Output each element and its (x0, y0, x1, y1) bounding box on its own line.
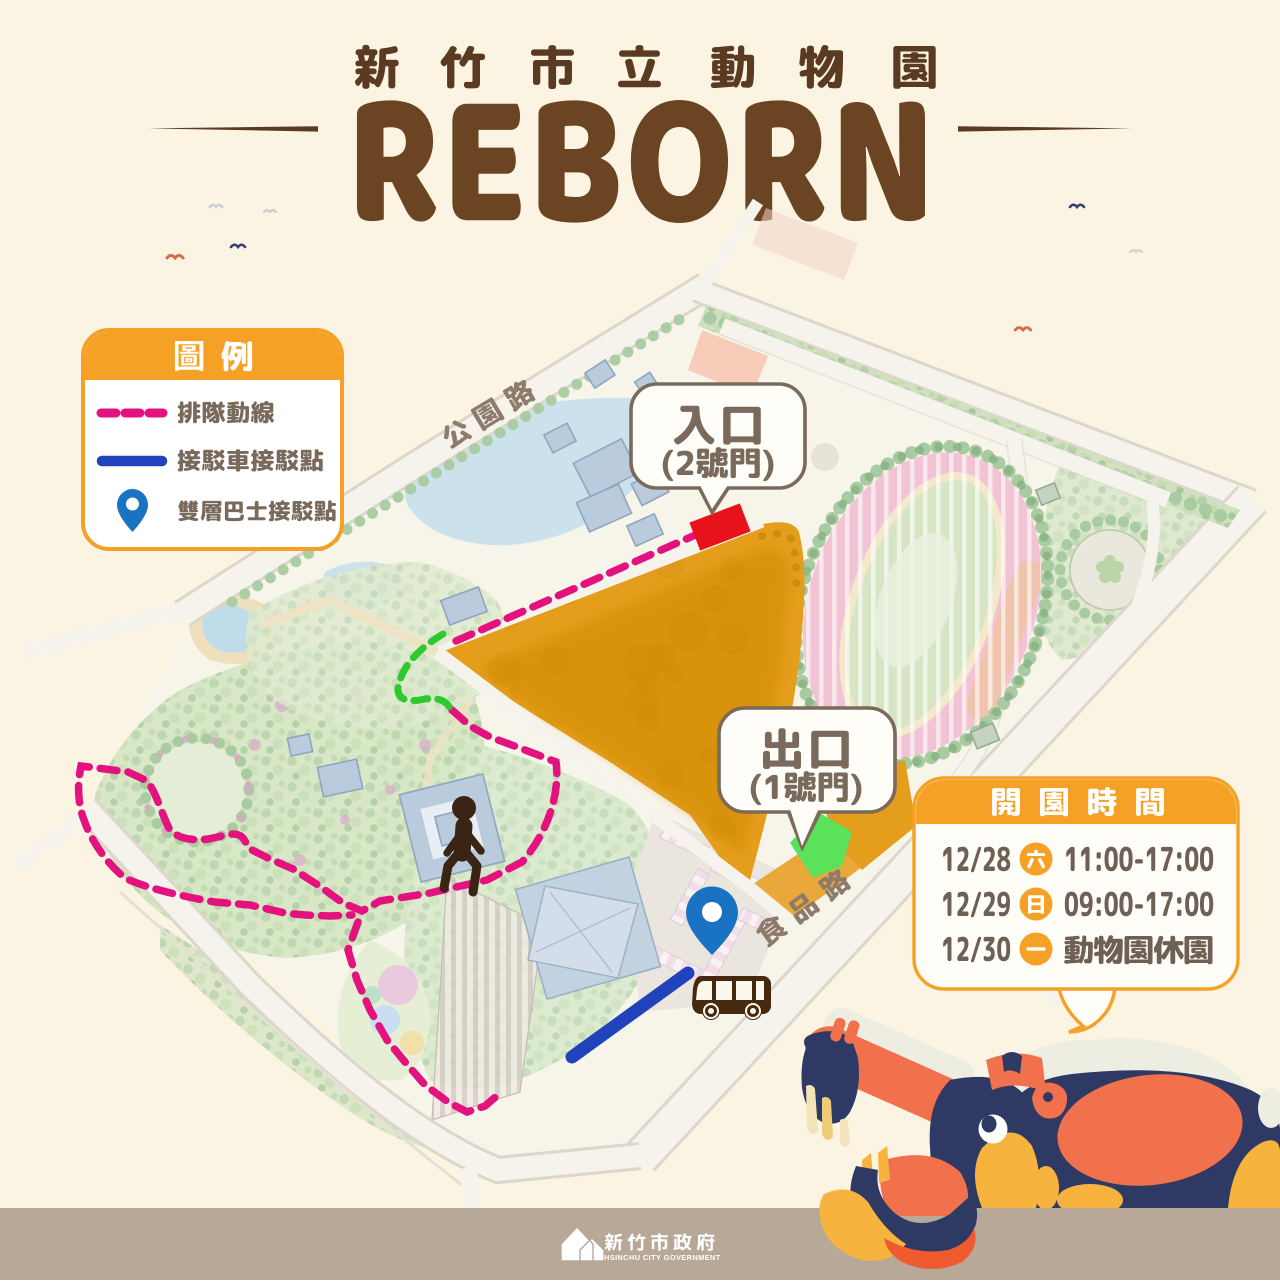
svg-text:HSINCHU CITY GOVERNMENT: HSINCHU CITY GOVERNMENT (604, 1253, 721, 1262)
